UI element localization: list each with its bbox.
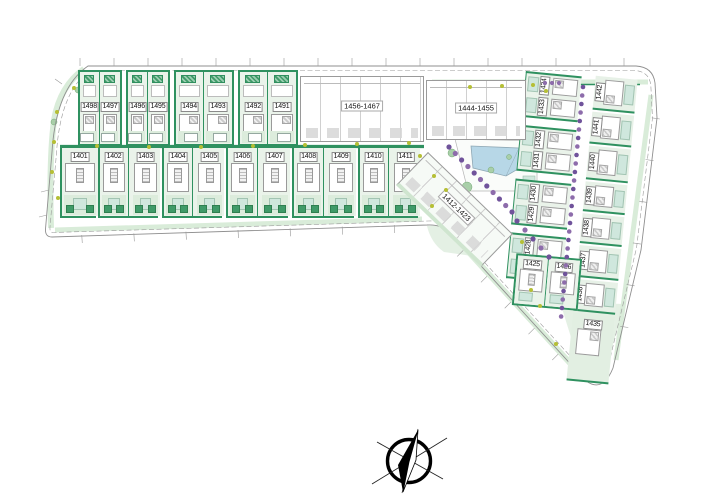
planting-bed (330, 205, 338, 213)
terrace-pool (517, 184, 529, 200)
plot-number-label: 1403 (136, 152, 155, 162)
planting-bed (180, 205, 188, 213)
planting-bed (199, 205, 207, 213)
house-building (552, 78, 579, 97)
facade-line (304, 83, 420, 84)
plot-number-label: 1410 (365, 152, 384, 162)
planting-bed (135, 205, 143, 213)
roof-terrace-hatch (589, 331, 599, 341)
planting-bed (278, 205, 286, 213)
house-building (167, 163, 189, 192)
facade-line (425, 160, 505, 237)
roof-terrace-hatch (106, 116, 115, 124)
house-building (539, 206, 566, 225)
rear-garden (82, 131, 97, 143)
carport (243, 85, 264, 97)
terrace-pool (610, 222, 622, 240)
roof-terrace-hatch (85, 116, 94, 124)
plot: 1410 (360, 148, 389, 216)
rear-garden (262, 195, 288, 215)
plot: 1496 (128, 72, 148, 144)
plot: 1439 (583, 181, 628, 215)
plot: 1498 (80, 72, 100, 144)
planting-bed (376, 205, 384, 213)
roof-terrace-hatch (595, 196, 605, 205)
duplex-block: 14921491 (238, 70, 298, 146)
plot-number-label: 1406 (233, 152, 252, 162)
roof-terrace-hatch (133, 116, 142, 124)
plunge-pool (184, 133, 198, 142)
staircase (271, 168, 279, 183)
house-building (103, 163, 125, 192)
house-building (587, 249, 608, 274)
plunge-pool (248, 133, 262, 142)
planting-bed (86, 205, 94, 213)
plot: 1442 (593, 76, 638, 114)
rear-garden (133, 195, 158, 215)
plot-number-label: 1496 (128, 102, 147, 112)
plunge-pool (277, 133, 291, 142)
plot: 1437 (576, 245, 621, 281)
plot-number-label: 1440 (588, 152, 600, 172)
roof-terrace-hatch (552, 101, 562, 110)
rear-garden (150, 131, 166, 143)
plot: 1431 (518, 148, 575, 174)
rear-garden (102, 131, 118, 143)
plot-number-label: 1409 (332, 152, 351, 162)
roof-terrace-hatch (189, 116, 198, 124)
balcony-row (306, 128, 418, 138)
balcony-row (432, 126, 520, 136)
plot-number-label: 1407 (266, 152, 285, 162)
plot: 1441 (589, 112, 634, 148)
roof-terrace-hatch (602, 129, 612, 138)
planting-bed (116, 205, 124, 213)
roof-terrace-hatch (253, 116, 262, 124)
rear-garden (328, 195, 354, 215)
plot: 1495 (148, 72, 168, 144)
plot-number-label: 1430 (528, 183, 540, 203)
green-roof (84, 75, 94, 83)
carport (103, 85, 117, 97)
plot: 1433 (523, 94, 580, 120)
house-building (263, 163, 287, 192)
plot-number-label: 1441 (591, 117, 603, 137)
staircase (370, 168, 378, 183)
carport (271, 85, 293, 97)
duplex-block: 14961495 (126, 70, 170, 146)
roof-terrace-hatch (547, 155, 557, 164)
terrace-pool (515, 205, 527, 221)
duplex-block: 14301429 (511, 179, 571, 230)
green-roof (245, 75, 260, 83)
carport (207, 85, 229, 97)
green-roof (132, 75, 142, 83)
house-building (547, 131, 574, 150)
carport (131, 85, 144, 97)
rear-garden (102, 195, 126, 215)
plot: 1408 (294, 148, 324, 216)
terrace-pool (623, 85, 635, 105)
staircase (206, 168, 214, 183)
plot-number-label: 1431 (532, 150, 544, 170)
planting-bed (168, 205, 176, 213)
plunge-pool (149, 133, 163, 142)
roof-terrace-hatch (605, 95, 615, 104)
house-building (549, 271, 576, 295)
plunge-pool (128, 133, 142, 142)
house-building (584, 283, 605, 308)
plot: 1494 (176, 72, 204, 144)
plot-number-label: 1494 (180, 102, 199, 112)
rear-garden (206, 131, 230, 143)
terrace-pool (607, 254, 619, 273)
roof-terrace-hatch (539, 241, 549, 250)
plot: 1405 (195, 148, 224, 216)
roof-terrace-hatch (544, 187, 554, 196)
plot-number-label: 1498 (80, 102, 99, 112)
plot-number-label: 1439 (584, 186, 596, 206)
plot: 1406 (228, 148, 258, 216)
carport (83, 85, 96, 97)
planting-bed (344, 205, 352, 213)
staircase (239, 168, 247, 183)
terrace-pool (616, 155, 628, 175)
roof-terrace-hatch (154, 116, 163, 124)
apartment-block-label: 1456-1467 (341, 101, 383, 112)
duplex-block: 14981497 (78, 70, 122, 146)
rear-garden (197, 195, 222, 215)
roof-terrace-hatch (218, 116, 227, 124)
plots-layer: 1434143314321431143014291428142714421441… (0, 0, 705, 497)
house-building (198, 163, 221, 192)
plot: 1402 (100, 148, 129, 216)
planting-bed (66, 205, 74, 213)
planting-bed (264, 205, 272, 213)
rear-garden (362, 195, 386, 215)
house-building (600, 116, 621, 141)
rear-garden (178, 131, 201, 143)
rear-garden (242, 131, 265, 143)
plunge-pool (213, 133, 227, 142)
planting-bed (298, 205, 306, 213)
house-building (550, 99, 577, 118)
plot-number-label: 1497 (101, 102, 120, 112)
carport (151, 85, 165, 97)
plot: 1491 (268, 72, 296, 144)
plot-number-label: 1425 (523, 259, 543, 271)
house-building (603, 80, 624, 107)
house-building (593, 185, 614, 208)
house-building (329, 163, 353, 192)
house-building (231, 163, 254, 192)
site-plan-canvas: 1434143314321431143014291428142714421441… (0, 0, 705, 497)
plunge-pool (80, 133, 94, 142)
rear-garden (166, 195, 190, 215)
plot-number-label: 1492 (244, 102, 263, 112)
planting-bed (148, 205, 156, 213)
plot: 1425 (514, 255, 549, 306)
planting-bed (395, 205, 403, 213)
terrace-pool (518, 292, 533, 302)
planting-bed (232, 205, 240, 213)
plot: 1404 (164, 148, 193, 216)
plot-number-label: 1405 (200, 152, 219, 162)
plot-number-label: 1495 (149, 102, 168, 112)
plot-number-label: 1442 (594, 82, 606, 102)
plot-number-label: 1434 (539, 76, 551, 96)
green-roof (210, 75, 225, 83)
plot: 1403 (131, 148, 160, 216)
apartment-block: 1444-1455 (426, 80, 526, 140)
house-building (65, 163, 95, 192)
rear-garden (270, 131, 294, 143)
house-building (541, 185, 568, 204)
plot-number-label: 1411 (396, 152, 414, 162)
rear-garden (230, 195, 255, 215)
plot: 1492 (240, 72, 268, 144)
house-block: 1401 (60, 148, 96, 218)
staircase (174, 168, 182, 183)
house-block: 14081409 (292, 148, 354, 218)
planting-bed (245, 205, 253, 213)
facade-line (430, 87, 522, 88)
carport (179, 85, 200, 97)
staircase (305, 168, 313, 183)
house-building (297, 163, 320, 192)
plot-number-label: 1402 (105, 152, 124, 162)
junction-pair-block: 14251426 (512, 253, 582, 311)
rear-garden (64, 195, 96, 215)
roof-terrace-hatch (549, 134, 559, 143)
roof-terrace-hatch (599, 165, 609, 174)
green-roof (152, 75, 163, 83)
green-roof (181, 75, 196, 83)
plot: 1497 (100, 72, 120, 144)
plot-number-label: 1426 (554, 262, 574, 274)
house-building (590, 217, 611, 240)
roof-terrace-hatch (554, 80, 564, 89)
terrace-pool (620, 120, 632, 139)
house-building (363, 163, 385, 192)
duplex-block: 14941493 (174, 70, 234, 146)
plot-number-label: 1408 (299, 152, 318, 162)
green-roof (104, 75, 115, 83)
plot-number-label: 1429 (526, 204, 538, 224)
roof-terrace-hatch (282, 116, 291, 124)
staircase (76, 168, 84, 183)
terrace-pool (525, 97, 537, 113)
plot: 1409 (326, 148, 356, 216)
plunge-pool (101, 133, 115, 142)
house-building (134, 163, 157, 192)
house-block: 14021403 (98, 148, 158, 218)
terrace-pool (549, 294, 564, 304)
plot: 1435 (566, 313, 614, 385)
terrace-pool (511, 238, 523, 254)
rear-garden (296, 195, 321, 215)
plot-number-label: 1493 (209, 102, 228, 112)
roof-terrace-hatch (586, 296, 596, 305)
house-building (545, 152, 572, 171)
plot-number-label: 1491 (273, 102, 292, 112)
plot-number-label: 1433 (537, 96, 549, 116)
plot-number-label: 1404 (169, 152, 188, 162)
roof-terrace-hatch (589, 262, 599, 271)
plot: 1438 (580, 213, 625, 247)
terrace-pool (604, 288, 616, 307)
roof-terrace-hatch (592, 228, 602, 237)
green-roof (274, 75, 289, 83)
apartment-block: 1456-1467 (300, 76, 424, 142)
house-building (575, 328, 601, 356)
plot: 1493 (204, 72, 232, 144)
terrace-pool (527, 76, 539, 92)
staircase (559, 276, 567, 289)
roof-terrace-hatch (542, 208, 552, 217)
staircase (337, 168, 345, 183)
plot-number-label: 1435 (583, 319, 603, 331)
house-block: 14041405 (162, 148, 222, 218)
planting-bed (104, 205, 112, 213)
rear-garden (130, 131, 145, 143)
plot-number-label: 1432 (534, 129, 546, 149)
house-building (596, 149, 617, 176)
plot: 1426 (545, 258, 580, 309)
plot: 1407 (260, 148, 290, 216)
house-building (518, 269, 544, 293)
plot: 1429 (512, 202, 569, 228)
planting-bed (408, 205, 416, 213)
apartment-block-label: 1444-1455 (455, 102, 497, 113)
staircase (110, 168, 118, 183)
plot: 1401 (62, 148, 98, 216)
plot-number-label: 1401 (71, 152, 90, 162)
terrace-pool (613, 190, 625, 208)
staircase (528, 273, 536, 286)
plot-number-label: 1438 (581, 218, 593, 238)
house-block: 14061407 (226, 148, 288, 218)
staircase (142, 168, 150, 183)
duplex-block: 14341433 (522, 71, 582, 122)
planting-bed (212, 205, 220, 213)
terrace-pool (520, 151, 532, 167)
plot: 1440 (586, 145, 631, 183)
planting-bed (311, 205, 319, 213)
planting-bed (364, 205, 372, 213)
